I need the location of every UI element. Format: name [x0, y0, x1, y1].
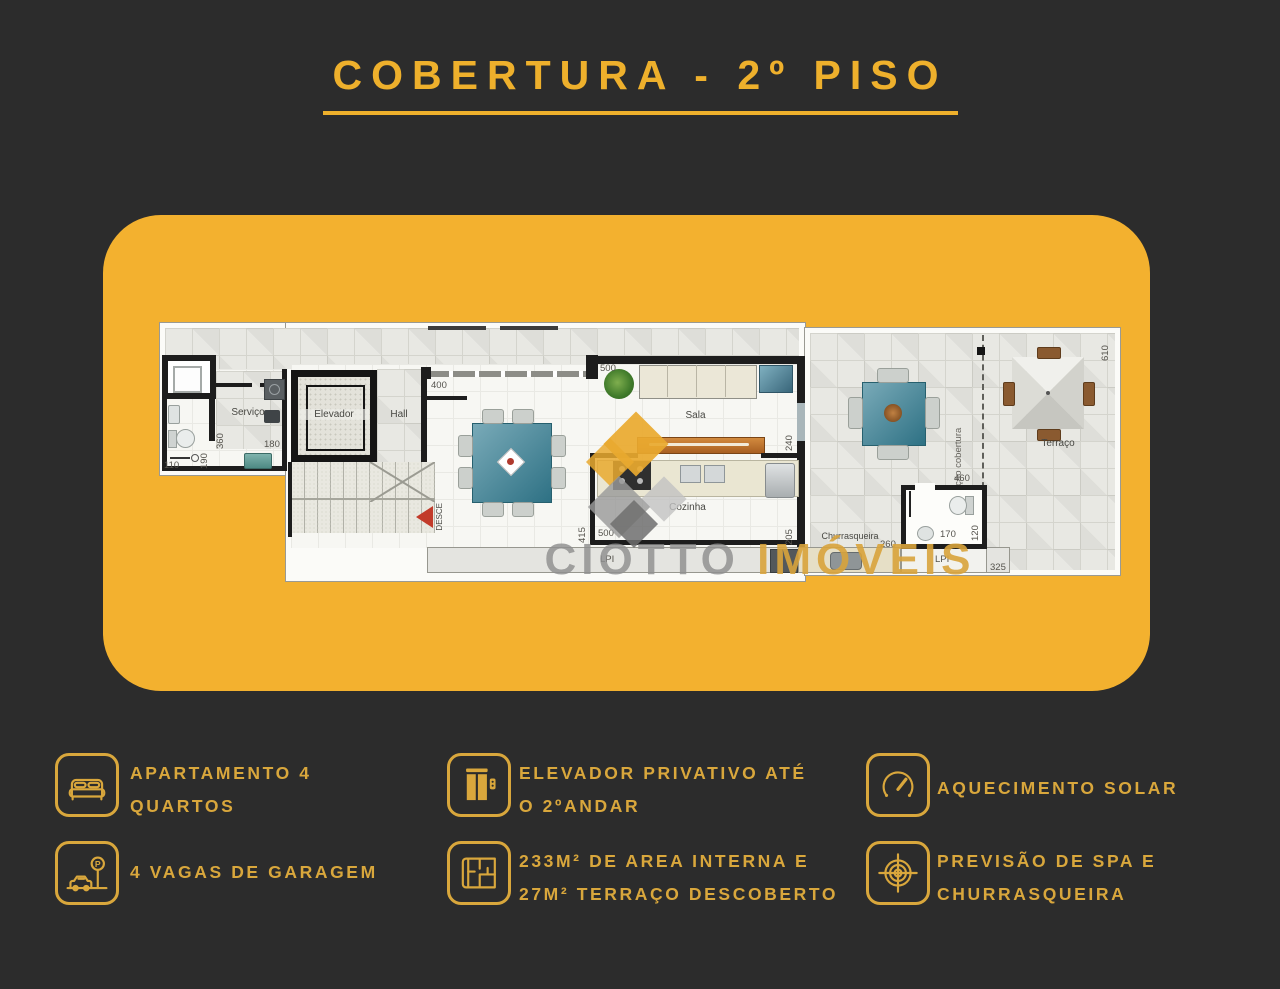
dim-240: 240	[784, 421, 795, 451]
flyer-page: { "title": { "text": "COBERTURA - 2º PIS…	[0, 0, 1280, 989]
chair	[458, 435, 473, 457]
feature-line: AQUECIMENTO SOLAR	[937, 772, 1178, 805]
sala-wall-top	[596, 356, 805, 364]
umbrella-pole	[1046, 391, 1050, 395]
hall-wall-right	[421, 368, 427, 463]
dining-flower	[507, 458, 514, 465]
sofa	[639, 365, 757, 399]
feature-line: 4 VAGAS DE GARAGEM	[130, 856, 378, 889]
terrace-bath-door-gap	[915, 483, 935, 490]
chair	[877, 368, 909, 383]
feature-line: ELEVADOR PRIVATIVO ATÉ	[519, 757, 807, 790]
window-top-2	[500, 326, 558, 330]
feature-box-bedrooms	[55, 753, 119, 817]
east-wall-glass	[797, 403, 805, 441]
feature-line: QUARTOS	[130, 790, 312, 823]
laundry-tub	[244, 453, 272, 469]
dim-180: 180	[264, 439, 280, 450]
feature-text-solar: AQUECIMENTO SOLAR	[937, 772, 1178, 805]
feature-line: CHURRASQUEIRA	[937, 878, 1156, 911]
sala-label: Sala	[668, 410, 723, 421]
fridge	[765, 463, 795, 498]
floorplan-icon	[456, 850, 502, 896]
stairs-cross	[370, 462, 435, 502]
chair	[925, 397, 940, 429]
feature-line: PREVISÃO DE SPA E	[937, 845, 1156, 878]
svg-text:P: P	[95, 859, 101, 869]
umbrella	[1012, 357, 1084, 429]
outdoor-table-center	[884, 404, 902, 422]
feature-text-area: 233M² DE AREA INTERNA E 27M² TERRAÇO DES…	[519, 845, 838, 911]
hall-label: Hall	[378, 409, 420, 420]
shower-tray	[173, 366, 202, 393]
brand-name-gold: IMÓVEIS	[757, 535, 975, 584]
desce-arrow	[416, 506, 433, 528]
feature-line: APARTAMENTO 4	[130, 757, 312, 790]
terrace-bench	[1037, 347, 1061, 359]
chair	[512, 502, 534, 517]
title-bar: COBERTURA - 2º PISO	[0, 52, 1280, 115]
feature-box-spa	[866, 841, 930, 905]
feature-text-elevator: ELEVADOR PRIVATIVO ATÉ O 2ºANDAR	[519, 757, 807, 823]
terrace-bench	[1003, 382, 1015, 406]
dim-500-sala: 500	[600, 363, 616, 374]
chair	[482, 502, 504, 517]
washer-door	[269, 384, 280, 395]
dim-400: 400	[431, 380, 447, 391]
feature-line: 233M² DE AREA INTERNA E	[519, 845, 838, 878]
target-icon	[875, 850, 921, 896]
desce-label: DESCE	[435, 503, 444, 531]
floorplan-card: Serviço Elevador Hall DESCE	[103, 215, 1150, 691]
feature-box-area	[447, 841, 511, 905]
parking-icon: P	[64, 850, 110, 896]
post-left	[421, 367, 431, 379]
sofa-seam	[696, 365, 697, 397]
elevator-label: Elevador	[299, 409, 369, 420]
feature-box-solar	[866, 753, 930, 817]
chair	[551, 435, 566, 457]
servico-wall-top-a	[216, 383, 252, 387]
bath1-knob	[191, 454, 199, 462]
chair	[877, 445, 909, 460]
page-title: COBERTURA - 2º PISO	[323, 52, 958, 115]
dining-window-wall	[427, 371, 588, 377]
feature-line: 27M² TERRAÇO DESCOBERTO	[519, 878, 838, 911]
bath1-towel-bar	[170, 457, 190, 459]
feature-line: O 2ºANDAR	[519, 790, 807, 823]
gauge-icon	[875, 762, 921, 808]
elevator-icon	[456, 762, 502, 808]
brand-watermark: CIOTTO IMÓVEIS	[430, 535, 1090, 585]
dim-110: 110	[164, 460, 179, 471]
burner	[637, 478, 643, 484]
media-cabinet	[759, 365, 793, 393]
feature-box-garage: P	[55, 841, 119, 905]
brand-name-gray: CIOTTO	[544, 535, 739, 584]
feature-text-bedrooms: APARTAMENTO 4 QUARTOS	[130, 757, 312, 823]
tb-toilet-bowl	[949, 496, 967, 515]
chair	[482, 409, 504, 424]
kitchen-wall-top-right	[761, 453, 805, 458]
feature-text-garage: 4 VAGAS DE GARAGEM	[130, 856, 378, 889]
chair	[551, 467, 566, 489]
terrace-bench	[1083, 382, 1095, 406]
sofa-seam	[667, 365, 668, 397]
feature-text-spa: PREVISÃO DE SPA E CHURRASQUEIRA	[937, 845, 1156, 911]
dim-190: 190	[199, 443, 210, 469]
servico-label: Serviço	[218, 407, 278, 418]
east-wall	[797, 356, 805, 548]
bath1-toilet-bowl	[176, 429, 195, 448]
projection-marker	[977, 347, 985, 355]
dim-460: 460	[954, 473, 970, 484]
bed-icon	[64, 762, 110, 808]
kitchen-sink	[680, 465, 701, 483]
window-top-1	[428, 326, 486, 330]
terraco-label: Terraço	[1025, 438, 1091, 449]
tb-shower-bar	[909, 491, 911, 517]
chair	[458, 467, 473, 489]
sofa-seam	[725, 365, 726, 397]
dim-610: 610	[1100, 331, 1111, 361]
kitchen-sink	[704, 465, 725, 483]
chair	[512, 409, 534, 424]
hall-divider-stub	[427, 396, 467, 400]
bath1-sink	[168, 405, 180, 424]
chair	[848, 397, 863, 429]
feature-box-elevator	[447, 753, 511, 817]
dim-360: 360	[215, 421, 226, 449]
